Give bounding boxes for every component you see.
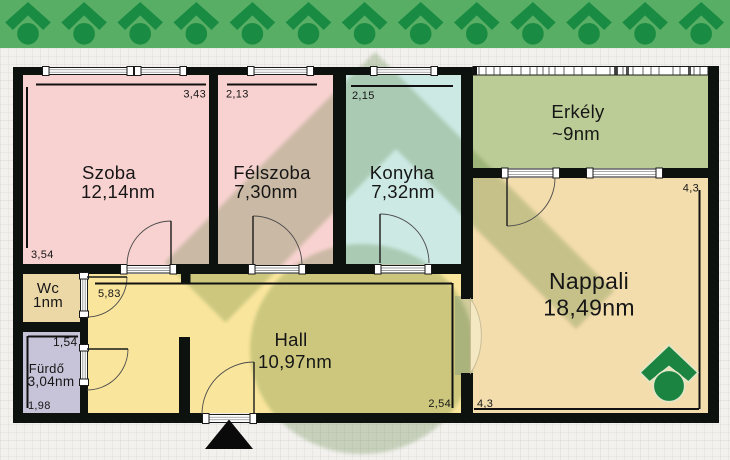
- svg-text:Félszoba: Félszoba: [233, 162, 311, 183]
- svg-text:4,3: 4,3: [477, 398, 493, 410]
- svg-text:7,32nm: 7,32nm: [371, 181, 435, 202]
- svg-text:18,49nm: 18,49nm: [543, 295, 635, 321]
- svg-text:3,54: 3,54: [31, 249, 54, 261]
- svg-text:4,3: 4,3: [683, 183, 699, 195]
- svg-text:Szoba: Szoba: [82, 162, 136, 183]
- svg-text:1nm: 1nm: [33, 294, 63, 311]
- svg-text:3,43: 3,43: [183, 89, 206, 101]
- svg-text:2,13: 2,13: [226, 89, 249, 101]
- svg-text:Konyha: Konyha: [370, 162, 435, 183]
- svg-text:7,30nm: 7,30nm: [234, 181, 298, 202]
- svg-text:2,15: 2,15: [352, 90, 375, 102]
- svg-text:1,98: 1,98: [28, 400, 51, 412]
- svg-text:3,04nm: 3,04nm: [28, 374, 75, 389]
- svg-text:12,14nm: 12,14nm: [81, 181, 155, 202]
- svg-text:Nappali: Nappali: [549, 268, 629, 294]
- svg-text:Hall: Hall: [274, 329, 307, 350]
- svg-text:~9nm: ~9nm: [552, 123, 600, 144]
- svg-text:5,83: 5,83: [98, 288, 121, 300]
- svg-text:2,54: 2,54: [428, 398, 451, 410]
- svg-text:Erkély: Erkély: [551, 101, 605, 122]
- svg-text:1,54: 1,54: [53, 335, 78, 349]
- svg-text:10,97nm: 10,97nm: [258, 351, 332, 372]
